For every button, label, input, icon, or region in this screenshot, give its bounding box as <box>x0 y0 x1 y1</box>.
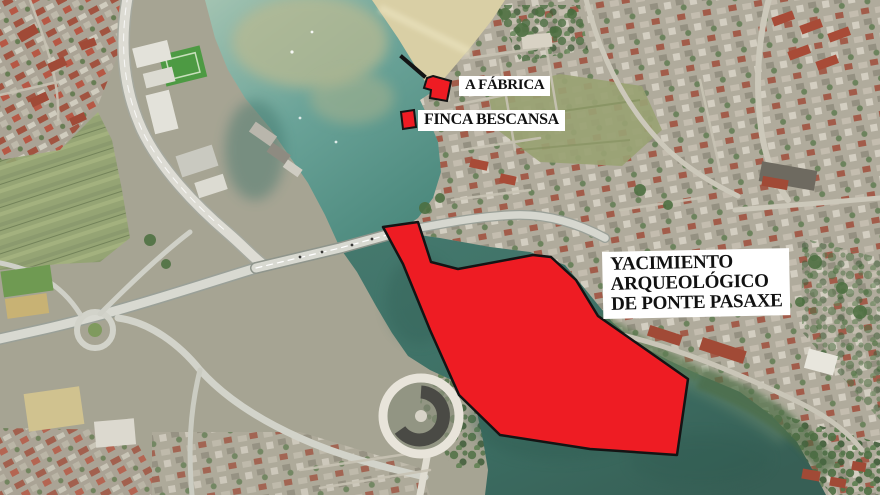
label-finca-bescansa: FINCA BESCANSA <box>418 110 565 131</box>
label-yacimiento-arqueologico: YACIMIENTO ARQUEOLÓGICO DE PONTE PASAXE <box>602 248 791 319</box>
satellite-map <box>0 0 880 495</box>
label-a-fabrica: A FÁBRICA <box>459 76 550 96</box>
label-yacimiento-line3: DE PONTE PASAXE <box>611 291 783 315</box>
spiral-building <box>381 376 461 456</box>
finca-bescansa-area-polygon <box>401 110 416 129</box>
map-screenshot: A FÁBRICA FINCA BESCANSA YACIMIENTO ARQU… <box>0 0 880 495</box>
